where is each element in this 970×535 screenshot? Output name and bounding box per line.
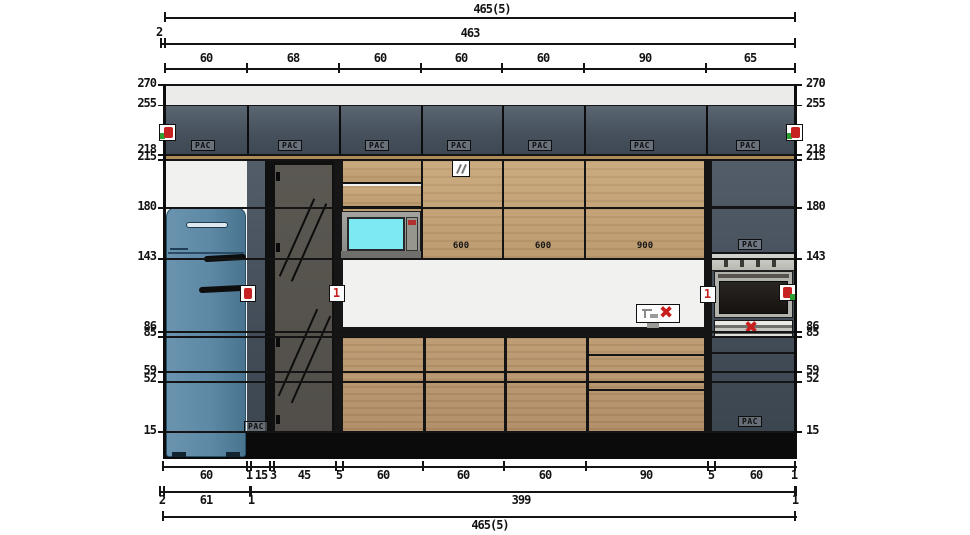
base-cabinet-run <box>343 337 704 431</box>
dim-bottom-seg2: 1 <box>241 494 261 507</box>
drawer-line <box>589 354 704 356</box>
ref-line <box>158 84 802 86</box>
dim-top-gap: 2 <box>156 26 170 39</box>
cabinet-divider <box>423 337 426 431</box>
marker-number: 1 <box>330 286 343 300</box>
dim-top-overall: 465(5) <box>457 3 527 16</box>
dim-bottom-seg: 60 <box>438 469 488 482</box>
x-icon: ✖ <box>659 303 673 323</box>
ref-line <box>158 336 802 338</box>
dim-right-height: 52 <box>806 372 846 385</box>
hinge-mark <box>276 338 280 347</box>
oven-knob <box>724 259 728 267</box>
dim-bottom-seg2: 61 <box>181 494 231 507</box>
pac-tag[interactable]: PAC <box>738 239 762 250</box>
wall-cabinet-flap <box>343 186 421 208</box>
hinge-mark <box>276 172 280 181</box>
dim-left-height: 215 <box>122 150 156 163</box>
dim-top-seg: 60 <box>518 52 568 65</box>
oven-window <box>719 281 788 314</box>
fridge-foot <box>226 452 240 457</box>
dim-right-height: 255 <box>806 97 846 110</box>
hinge-mark <box>276 415 280 424</box>
cabinet-divider <box>421 160 423 258</box>
dim-line <box>165 68 795 70</box>
dim-right-height: 215 <box>806 150 846 163</box>
dim-right-height: 143 <box>806 250 846 263</box>
dim-bottom-seg: 45 <box>279 469 329 482</box>
fridge-foot <box>172 452 186 457</box>
microwave-display <box>408 220 416 225</box>
dim-left-height: 255 <box>122 97 156 110</box>
cabinet-divider <box>504 337 507 431</box>
ref-line <box>158 258 802 260</box>
marker-top-right[interactable] <box>786 124 803 141</box>
ref-line <box>158 431 802 433</box>
hinge-mark <box>276 243 280 252</box>
pac-tag[interactable]: PAC <box>278 140 302 151</box>
pac-tag[interactable]: PAC <box>447 140 471 151</box>
ref-line <box>158 159 802 161</box>
ref-line <box>158 207 802 209</box>
cabinet-divider <box>502 160 504 258</box>
dim-top-seg: 60 <box>436 52 486 65</box>
dim-left-height: 270 <box>122 77 156 90</box>
hood-icon[interactable] <box>452 160 470 177</box>
sink-icon-stand <box>647 323 659 328</box>
pac-tag[interactable]: PAC <box>736 140 760 151</box>
dim-left-height: 143 <box>122 250 156 263</box>
dim-bottom-seg: 60 <box>358 469 408 482</box>
fridge-side-trim <box>170 248 188 250</box>
marker-oven-left[interactable]: 1 <box>700 286 716 303</box>
ref-line <box>158 331 802 333</box>
dim-top-seg: 60 <box>181 52 231 65</box>
pac-tag[interactable]: PAC <box>191 140 215 151</box>
dim-bottom-seg: 1 <box>784 469 804 482</box>
microwave-door <box>347 217 405 251</box>
ref-line <box>158 371 802 373</box>
sink-removed-icon[interactable]: ✖ <box>636 304 680 323</box>
dim-top-seg: 68 <box>268 52 318 65</box>
fridge-top-handle <box>186 222 228 228</box>
oven-handle <box>718 274 789 278</box>
dim-line <box>160 491 797 493</box>
dim-line <box>165 17 795 19</box>
marker-top-left[interactable] <box>159 124 176 141</box>
microwave-base <box>341 251 421 258</box>
pac-tag[interactable]: PAC <box>365 140 389 151</box>
dim-left-height: 180 <box>122 200 156 213</box>
dim-bottom-seg: 60 <box>520 469 570 482</box>
cabinet-width-label: 900 <box>630 241 660 251</box>
dim-left-height: 85 <box>122 326 156 339</box>
pac-tag[interactable]: PAC <box>738 416 762 427</box>
tower-panel-line <box>712 352 795 354</box>
kitchen-elevation-drawing: 600 600 900 ✖ ✖ PAC PAC PA <box>0 0 970 535</box>
oven-knob <box>756 259 760 267</box>
ref-line <box>158 105 802 106</box>
dim-line <box>161 43 795 45</box>
x-icon: ✖ <box>744 318 758 338</box>
dim-top-inner: 463 <box>440 27 500 40</box>
dim-top-seg: 90 <box>620 52 670 65</box>
cabinet-divider <box>584 160 586 258</box>
wall-cabinet-flap <box>343 160 421 184</box>
cabinet-width-label: 600 <box>528 241 558 251</box>
dim-left-height: 15 <box>122 424 156 437</box>
marker-oven-right[interactable] <box>779 284 796 301</box>
ref-line <box>158 381 802 383</box>
pac-tag[interactable]: PAC <box>630 140 654 151</box>
dim-bottom-seg2: 1 <box>785 494 805 507</box>
dim-top-seg: 65 <box>725 52 775 65</box>
ceiling-bulkhead <box>163 84 797 107</box>
marker-number: 1 <box>701 287 714 301</box>
dim-right-height: 85 <box>806 326 846 339</box>
dim-left-height: 52 <box>122 372 156 385</box>
marker-tall-unit[interactable]: 1 <box>329 285 345 302</box>
toe-kick <box>163 431 797 459</box>
dim-bottom-seg: 5 <box>329 469 349 482</box>
dim-bottom-seg: 60 <box>181 469 231 482</box>
dim-right-height: 180 <box>806 200 846 213</box>
dim-bottom-seg: 5 <box>701 469 721 482</box>
dim-right-height: 15 <box>806 424 846 437</box>
ref-line <box>158 154 802 156</box>
oven-knob <box>772 259 776 267</box>
dim-bottom-seg2: 2 <box>152 494 172 507</box>
fridge-door-seam <box>168 252 244 254</box>
dim-right-height: 270 <box>806 77 846 90</box>
dim-bottom-overall: 465(5) <box>455 519 525 532</box>
pac-tag[interactable]: PAC <box>528 140 552 151</box>
dim-bottom-seg2: 399 <box>496 494 546 507</box>
oven-knob <box>740 259 744 267</box>
cabinet-width-label: 600 <box>446 241 476 251</box>
drawer-line <box>589 389 704 391</box>
marker-fridge[interactable] <box>240 285 256 302</box>
dim-top-seg: 60 <box>355 52 405 65</box>
cabinet-divider <box>586 337 589 431</box>
dim-bottom-seg: 90 <box>621 469 671 482</box>
dim-bottom-seg: 60 <box>731 469 781 482</box>
